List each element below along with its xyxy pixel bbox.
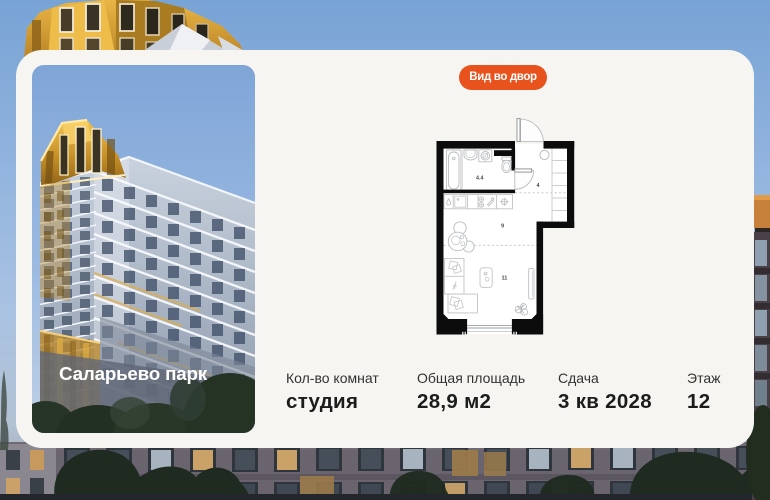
svg-text:Саларьево парк: Саларьево парк bbox=[59, 363, 208, 384]
svg-text:4.4: 4.4 bbox=[476, 176, 484, 182]
svg-text:4: 4 bbox=[537, 183, 540, 189]
svg-text:11: 11 bbox=[502, 276, 508, 282]
svg-text:9: 9 bbox=[501, 223, 504, 229]
